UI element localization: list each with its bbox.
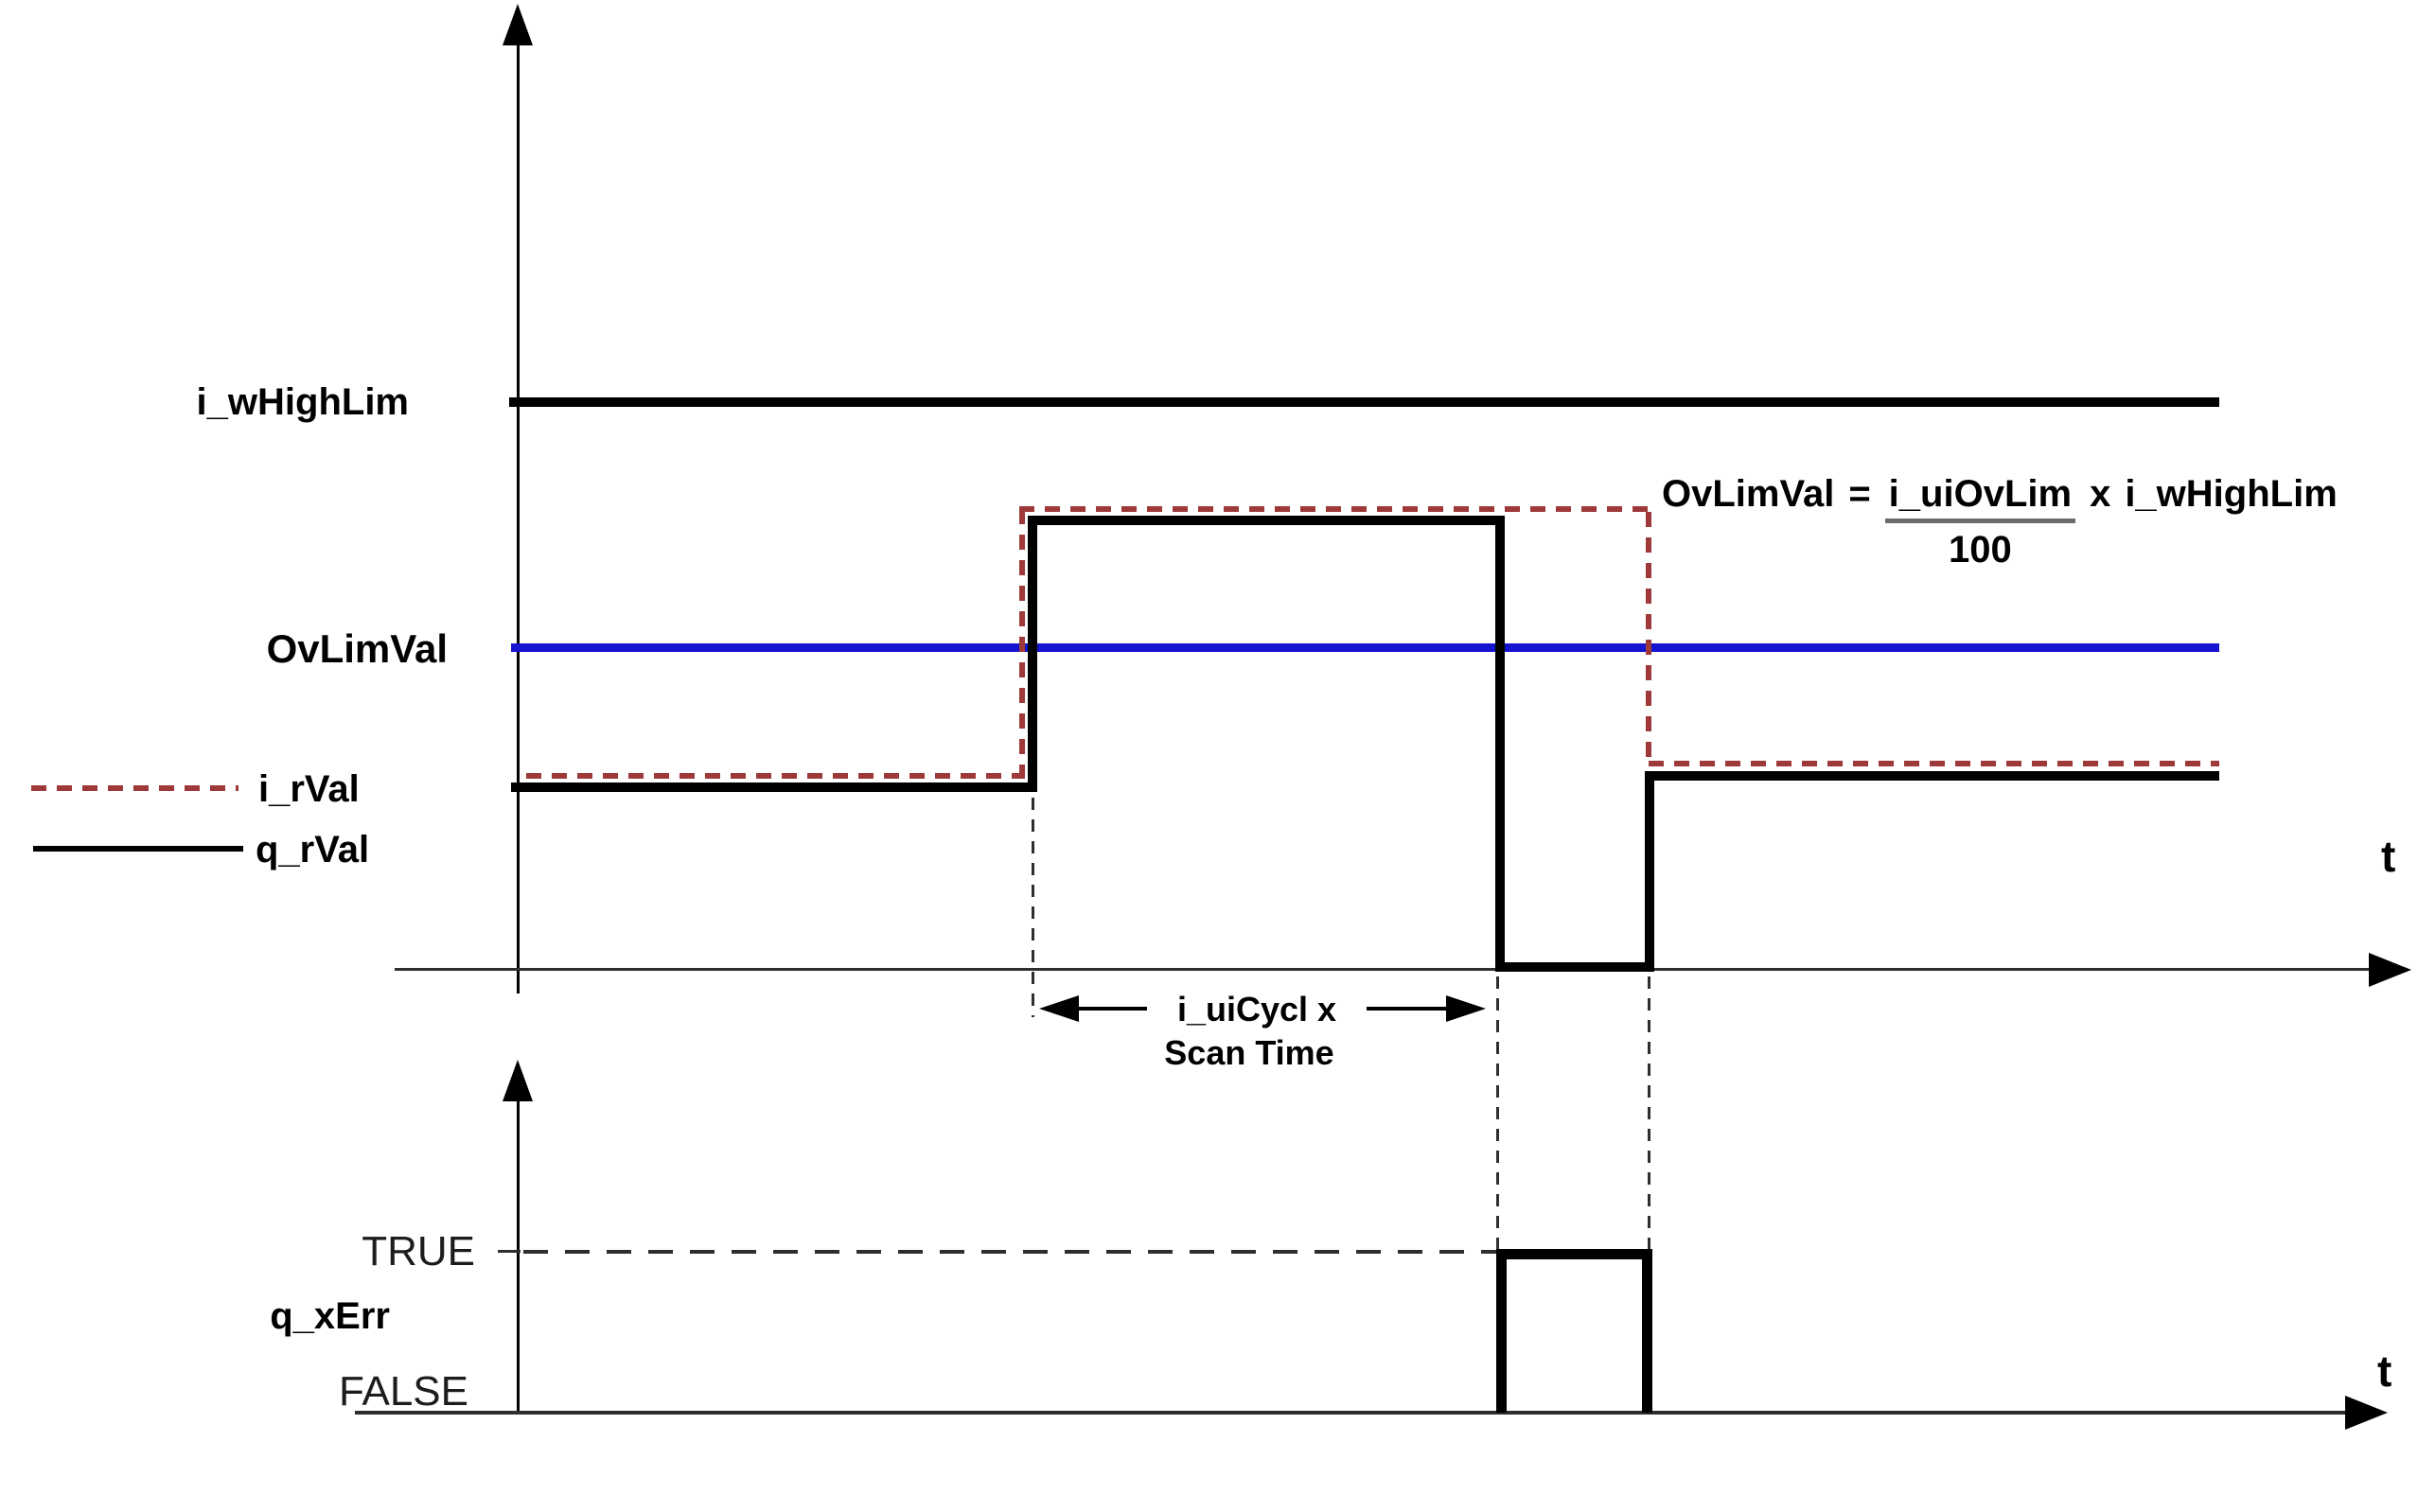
error-start-guide-dashed	[1496, 976, 1499, 1252]
over-limit-line	[511, 643, 2219, 652]
q-rval-segment	[1495, 962, 1654, 972]
q-xerr-pulse-rising-edge	[1496, 1254, 1507, 1413]
i-rval-segment	[1019, 506, 1651, 512]
false-level-label: FALSE	[274, 1368, 468, 1415]
bottom-value-axis	[517, 1101, 520, 1414]
formula-denominator: 100	[1885, 529, 2075, 571]
formula-numerator: i_uiOvLim	[1885, 473, 2075, 523]
cycle-arrow-left-icon	[1039, 995, 1079, 1022]
cycle-arrow-right-shaft	[1367, 1007, 1446, 1011]
timing-diagram-canvas: t i_wHighLim OvLimVal i_rVal q_rVal i_ui…	[0, 0, 2418, 1512]
true-level-dashed-line	[523, 1250, 1496, 1254]
true-level-tick	[498, 1250, 521, 1253]
high-limit-label: i_wHighLim	[170, 382, 409, 422]
i-rval-segment	[1019, 509, 1025, 776]
q-xerr-signal-label: q_xErr	[199, 1296, 390, 1336]
legend-i-rval-label: i_rVal	[258, 769, 360, 809]
q-rval-segment	[1645, 771, 2219, 781]
cycle-annotation-line1: i_uiCycl x	[1147, 990, 1367, 1029]
cycle-annotation-line2: Scan Time	[1117, 1033, 1382, 1073]
legend-q-rval-label: q_rVal	[256, 830, 369, 870]
bottom-time-axis-arrow-icon	[2345, 1396, 2388, 1430]
q-rval-segment	[1028, 516, 1505, 525]
formula-equals: =	[1848, 473, 1870, 516]
legend-q-rval-line-sample	[33, 846, 243, 852]
formula-lhs: OvLimVal	[1662, 473, 1834, 516]
cycle-start-guide-dashed	[1032, 798, 1034, 1017]
i-rval-segment	[526, 773, 1025, 779]
cycle-arrow-right-icon	[1446, 995, 1486, 1022]
q-xerr-pulse-top	[1496, 1249, 1652, 1259]
top-time-axis-arrow-icon	[2369, 953, 2411, 987]
top-time-axis-label: t	[2381, 831, 2395, 882]
top-value-axis-arrow-icon	[503, 4, 533, 45]
over-limit-formula: OvLimVal = i_uiOvLim 100 x i_wHighLim	[1662, 473, 2338, 571]
legend-i-rval-line-sample	[31, 785, 238, 791]
q-rval-segment	[1495, 516, 1505, 972]
formula-rhs: i_wHighLim	[2125, 473, 2337, 516]
top-time-axis	[395, 968, 2371, 971]
q-rval-segment	[511, 782, 1037, 792]
high-limit-line	[509, 397, 2219, 407]
true-level-label: TRUE	[284, 1228, 475, 1275]
error-end-guide-dashed	[1648, 976, 1650, 1252]
over-limit-label: OvLimVal	[208, 628, 448, 670]
q-rval-segment	[1028, 516, 1037, 792]
formula-fraction: i_uiOvLim 100	[1885, 473, 2075, 571]
cycle-arrow-left-shaft	[1077, 1007, 1147, 1011]
formula-multiply: x	[2090, 473, 2110, 516]
bottom-time-axis	[355, 1411, 2348, 1415]
i-rval-segment	[1649, 761, 2219, 766]
i-rval-segment	[1646, 512, 1651, 764]
q-rval-segment	[1645, 771, 1654, 972]
q-xerr-pulse-falling-edge	[1642, 1254, 1652, 1413]
bottom-value-axis-arrow-icon	[503, 1060, 533, 1101]
bottom-time-axis-label: t	[2377, 1345, 2392, 1397]
top-value-axis	[517, 44, 520, 993]
